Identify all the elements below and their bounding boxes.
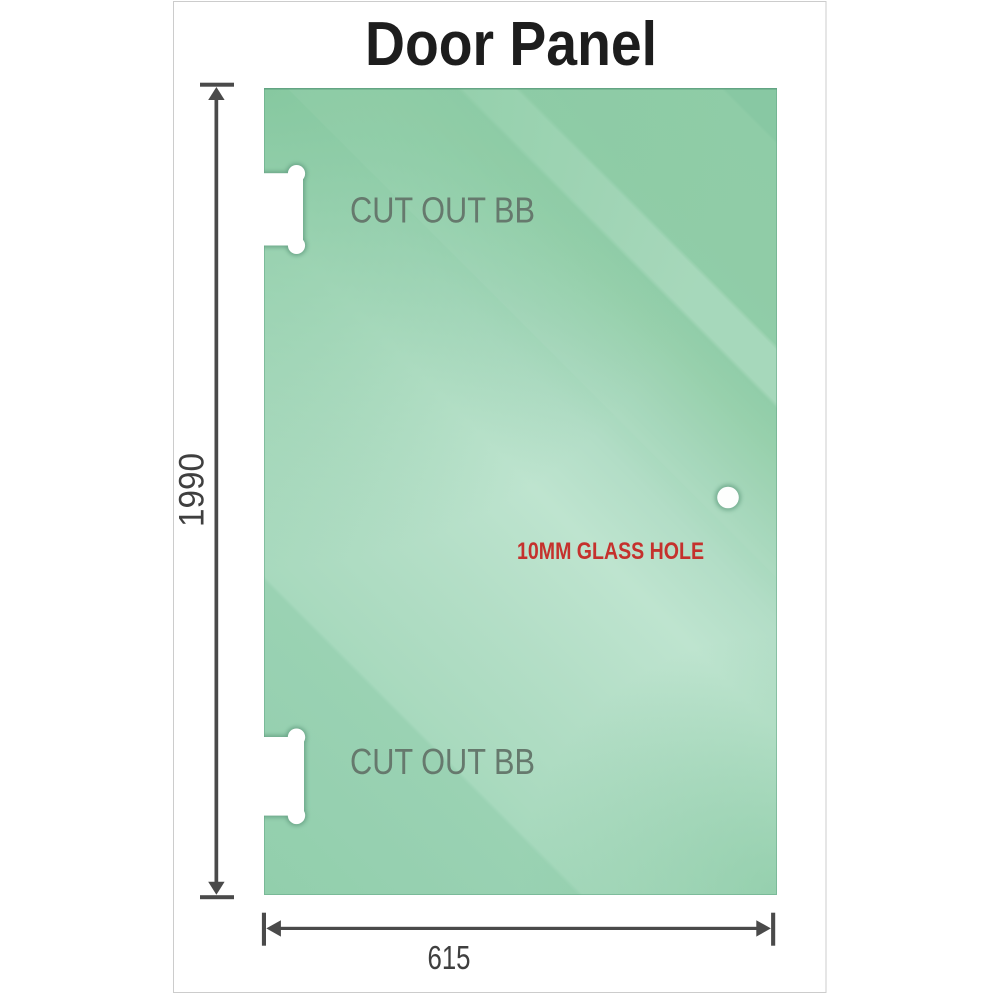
svg-text:615: 615 — [428, 939, 471, 976]
svg-text:10MM GLASS HOLE: 10MM GLASS HOLE — [517, 538, 704, 565]
svg-text:Door Panel: Door Panel — [365, 10, 657, 79]
svg-text:1990: 1990 — [173, 453, 212, 527]
svg-text:CUT OUT BB: CUT OUT BB — [350, 741, 535, 782]
svg-text:CUT OUT BB: CUT OUT BB — [350, 190, 535, 231]
